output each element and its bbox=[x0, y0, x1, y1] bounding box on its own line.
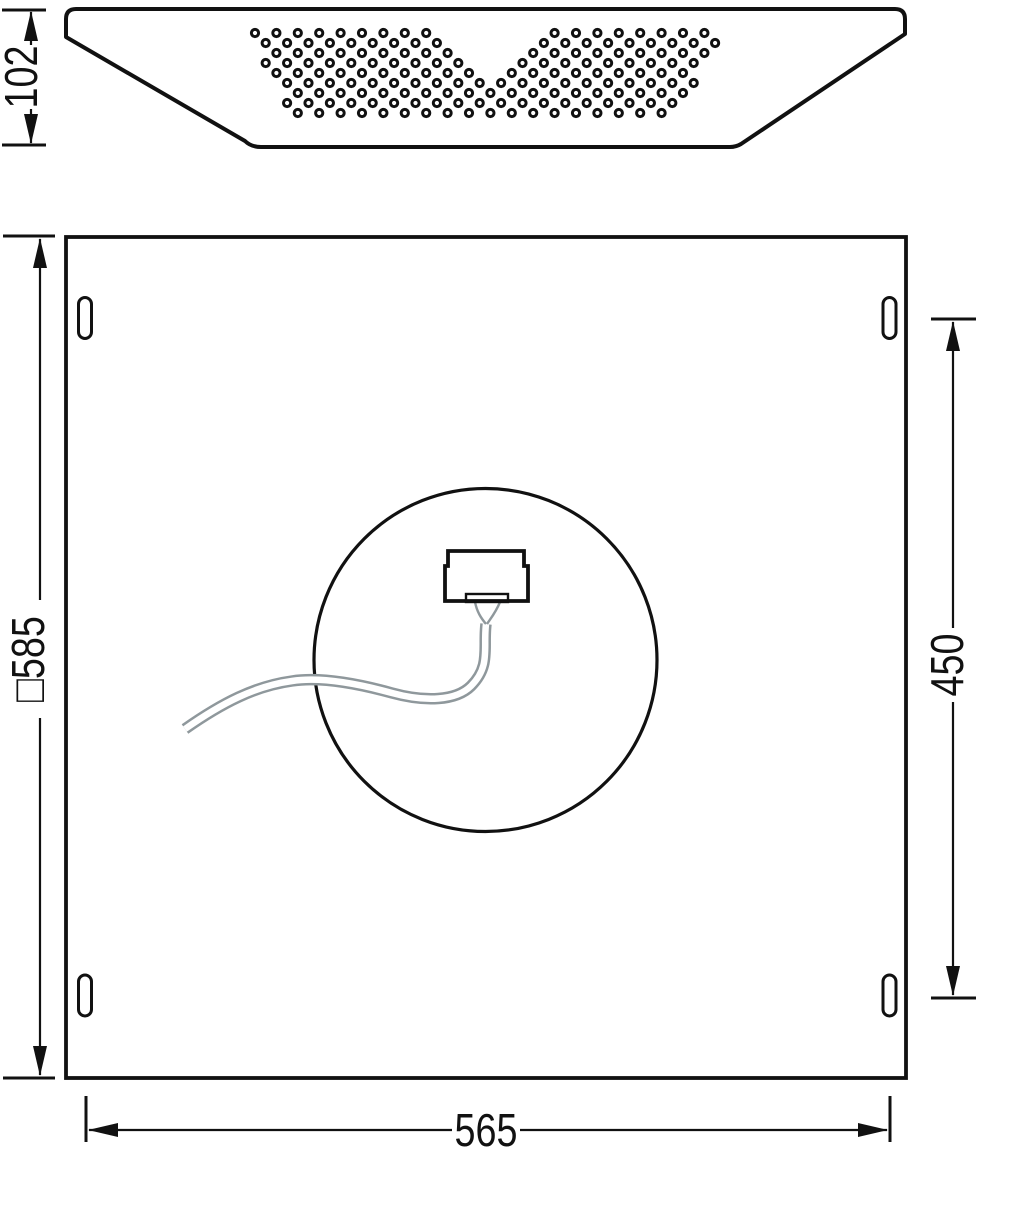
mounting-slot-top-right bbox=[883, 298, 896, 339]
perforation-hole bbox=[455, 79, 462, 86]
perforation-hole bbox=[615, 109, 622, 116]
perforation-hole bbox=[562, 39, 569, 46]
perforation-hole bbox=[669, 99, 676, 106]
dim-565-arrow-left bbox=[88, 1123, 118, 1137]
perforation-hole bbox=[626, 99, 633, 106]
perforation-pattern bbox=[251, 29, 718, 116]
perforation-hole bbox=[583, 99, 590, 106]
dim-565-arrow-right bbox=[858, 1123, 888, 1137]
perforation-hole bbox=[465, 109, 472, 116]
dimension-profile-height: 102 bbox=[0, 10, 47, 145]
perforation-hole bbox=[273, 49, 280, 56]
perforation-hole bbox=[615, 29, 622, 36]
perforation-hole bbox=[337, 29, 344, 36]
perforation-hole bbox=[540, 39, 547, 46]
perforation-hole bbox=[615, 89, 622, 96]
perforation-hole bbox=[305, 79, 312, 86]
perforation-hole bbox=[444, 109, 451, 116]
perforation-hole bbox=[412, 39, 419, 46]
perforation-hole bbox=[476, 79, 483, 86]
perforation-hole bbox=[305, 59, 312, 66]
perforation-hole bbox=[380, 49, 387, 56]
perforation-hole bbox=[391, 99, 398, 106]
perforation-hole bbox=[337, 49, 344, 56]
perforation-hole bbox=[380, 109, 387, 116]
perforation-hole bbox=[594, 69, 601, 76]
perforation-hole bbox=[669, 79, 676, 86]
perforation-hole bbox=[583, 59, 590, 66]
perforation-hole bbox=[401, 29, 408, 36]
perforation-hole bbox=[326, 59, 333, 66]
connector-wire-left bbox=[475, 602, 486, 624]
perforation-hole bbox=[637, 69, 644, 76]
perforation-hole bbox=[465, 89, 472, 96]
perforation-hole bbox=[294, 109, 301, 116]
dim-450-arrow-up bbox=[946, 321, 960, 351]
perforation-hole bbox=[679, 49, 686, 56]
perforation-hole bbox=[572, 69, 579, 76]
perforation-hole bbox=[316, 49, 323, 56]
perforation-hole bbox=[369, 39, 376, 46]
dim-585-arrow-up bbox=[33, 238, 47, 268]
perforation-hole bbox=[326, 79, 333, 86]
perforation-hole bbox=[498, 99, 505, 106]
dimension-panel-square: □585 bbox=[2, 236, 55, 1078]
perforation-hole bbox=[551, 49, 558, 56]
perforation-hole bbox=[423, 109, 430, 116]
perforation-hole bbox=[358, 49, 365, 56]
perforation-hole bbox=[391, 39, 398, 46]
perforation-hole bbox=[358, 89, 365, 96]
perforation-hole bbox=[487, 109, 494, 116]
rear-view-panel bbox=[66, 237, 906, 1078]
perforation-hole bbox=[433, 59, 440, 66]
perforation-hole bbox=[572, 89, 579, 96]
perforation-hole bbox=[701, 49, 708, 56]
perforation-hole bbox=[637, 89, 644, 96]
perforation-hole bbox=[551, 109, 558, 116]
perforation-hole bbox=[583, 79, 590, 86]
perforation-hole bbox=[562, 79, 569, 86]
perforation-hole bbox=[380, 89, 387, 96]
perforation-hole bbox=[294, 29, 301, 36]
perforation-hole bbox=[562, 99, 569, 106]
perforation-hole bbox=[401, 109, 408, 116]
profile-outline bbox=[66, 9, 905, 147]
perforation-hole bbox=[284, 79, 291, 86]
perforation-hole bbox=[412, 79, 419, 86]
dim-102-arrow-down bbox=[24, 114, 38, 144]
perforation-hole bbox=[348, 99, 355, 106]
drawing-canvas: 102 □585 450 bbox=[0, 0, 1027, 1200]
perforation-hole bbox=[487, 89, 494, 96]
perforation-hole bbox=[669, 59, 676, 66]
perforation-hole bbox=[626, 59, 633, 66]
perforation-hole bbox=[316, 109, 323, 116]
perforation-hole bbox=[658, 109, 665, 116]
perforation-hole bbox=[583, 39, 590, 46]
perforation-hole bbox=[519, 79, 526, 86]
perforation-hole bbox=[605, 39, 612, 46]
perforation-hole bbox=[358, 109, 365, 116]
perforation-hole bbox=[519, 59, 526, 66]
perforation-hole bbox=[594, 49, 601, 56]
perforation-hole bbox=[605, 99, 612, 106]
perforation-hole bbox=[690, 39, 697, 46]
perforation-hole bbox=[572, 29, 579, 36]
perforation-hole bbox=[690, 79, 697, 86]
perforation-hole bbox=[444, 49, 451, 56]
perforation-hole bbox=[637, 29, 644, 36]
perforation-hole bbox=[508, 109, 515, 116]
perforation-hole bbox=[391, 59, 398, 66]
perforation-hole bbox=[423, 69, 430, 76]
perforation-hole bbox=[615, 69, 622, 76]
perforation-hole bbox=[369, 59, 376, 66]
perforation-hole bbox=[712, 39, 719, 46]
perforation-hole bbox=[401, 49, 408, 56]
perforation-hole bbox=[669, 39, 676, 46]
dim-102-label: 102 bbox=[0, 46, 47, 109]
perforation-hole bbox=[433, 39, 440, 46]
dim-450-arrow-down bbox=[946, 966, 960, 996]
perforation-hole bbox=[433, 99, 440, 106]
perforation-hole bbox=[348, 39, 355, 46]
dim-585-arrow-down bbox=[33, 1046, 47, 1076]
perforation-hole bbox=[530, 49, 537, 56]
perforation-hole bbox=[423, 49, 430, 56]
perforation-hole bbox=[273, 69, 280, 76]
perforation-hole bbox=[348, 79, 355, 86]
perforation-hole bbox=[701, 29, 708, 36]
perforation-hole bbox=[572, 49, 579, 56]
perforation-hole bbox=[262, 59, 269, 66]
perforation-hole bbox=[679, 69, 686, 76]
perforation-hole bbox=[423, 29, 430, 36]
perforation-hole bbox=[594, 109, 601, 116]
perforation-hole bbox=[444, 89, 451, 96]
perforation-hole bbox=[605, 59, 612, 66]
top-view-profile bbox=[66, 9, 905, 147]
perforation-hole bbox=[562, 59, 569, 66]
perforation-hole bbox=[594, 89, 601, 96]
perforation-hole bbox=[401, 69, 408, 76]
dim-585-label: □585 bbox=[2, 616, 53, 702]
perforation-hole bbox=[294, 89, 301, 96]
perforation-hole bbox=[551, 29, 558, 36]
dim-450-label: 450 bbox=[921, 634, 972, 697]
perforation-hole bbox=[658, 29, 665, 36]
perforation-hole bbox=[412, 99, 419, 106]
perforation-hole bbox=[284, 99, 291, 106]
perforation-hole bbox=[572, 109, 579, 116]
perforation-hole bbox=[551, 89, 558, 96]
perforation-hole bbox=[316, 29, 323, 36]
perforation-hole bbox=[679, 89, 686, 96]
connector-wire-right bbox=[487, 602, 500, 624]
perforation-hole bbox=[626, 79, 633, 86]
perforation-hole bbox=[358, 29, 365, 36]
perforation-hole bbox=[337, 109, 344, 116]
perforation-hole bbox=[401, 89, 408, 96]
perforation-hole bbox=[647, 99, 654, 106]
perforation-hole bbox=[369, 99, 376, 106]
perforation-hole bbox=[540, 59, 547, 66]
perforation-hole bbox=[605, 79, 612, 86]
perforation-hole bbox=[337, 69, 344, 76]
mounting-slot-top-left bbox=[79, 298, 92, 339]
perforation-hole bbox=[637, 49, 644, 56]
drawing-page: 102 □585 450 bbox=[0, 0, 1027, 1200]
perforation-hole bbox=[294, 69, 301, 76]
perforation-hole bbox=[444, 69, 451, 76]
dim-565-label: 565 bbox=[455, 1104, 518, 1155]
perforation-hole bbox=[658, 49, 665, 56]
mounting-slot-bottom-left bbox=[79, 975, 92, 1016]
perforation-hole bbox=[284, 39, 291, 46]
supply-cable bbox=[185, 624, 486, 729]
perforation-hole bbox=[540, 99, 547, 106]
perforation-hole bbox=[380, 69, 387, 76]
perforation-hole bbox=[647, 39, 654, 46]
perforation-hole bbox=[530, 89, 537, 96]
perforation-hole bbox=[658, 89, 665, 96]
perforation-hole bbox=[369, 79, 376, 86]
perforation-hole bbox=[326, 39, 333, 46]
perforation-hole bbox=[519, 99, 526, 106]
perforation-hole bbox=[690, 59, 697, 66]
perforation-hole bbox=[679, 29, 686, 36]
perforation-hole bbox=[391, 79, 398, 86]
perforation-hole bbox=[508, 69, 515, 76]
perforation-hole bbox=[337, 89, 344, 96]
perforation-hole bbox=[348, 59, 355, 66]
perforation-hole bbox=[305, 39, 312, 46]
perforation-hole bbox=[358, 69, 365, 76]
dimension-mount-horizontal: 565 bbox=[86, 1096, 890, 1156]
perforation-hole bbox=[380, 29, 387, 36]
perforation-hole bbox=[530, 69, 537, 76]
dim-102-arrow-up bbox=[24, 11, 38, 41]
perforation-hole bbox=[637, 109, 644, 116]
perforation-hole bbox=[305, 99, 312, 106]
perforation-hole bbox=[433, 79, 440, 86]
perforation-hole bbox=[647, 79, 654, 86]
perforation-hole bbox=[594, 29, 601, 36]
perforation-hole bbox=[251, 29, 258, 36]
perforation-hole bbox=[423, 89, 430, 96]
perforation-hole bbox=[273, 29, 280, 36]
perforation-hole bbox=[647, 59, 654, 66]
perforation-hole bbox=[316, 69, 323, 76]
perforation-hole bbox=[465, 69, 472, 76]
perforation-hole bbox=[412, 59, 419, 66]
perforation-hole bbox=[626, 39, 633, 46]
perforation-hole bbox=[658, 69, 665, 76]
dimension-mount-vertical: 450 bbox=[921, 319, 976, 998]
perforation-hole bbox=[530, 109, 537, 116]
perforation-hole bbox=[316, 89, 323, 96]
perforation-hole bbox=[294, 49, 301, 56]
mounting-slot-bottom-right bbox=[883, 975, 896, 1016]
perforation-hole bbox=[326, 99, 333, 106]
perforation-hole bbox=[476, 99, 483, 106]
perforation-hole bbox=[455, 59, 462, 66]
perforation-hole bbox=[508, 89, 515, 96]
perforation-hole bbox=[551, 69, 558, 76]
perforation-hole bbox=[284, 59, 291, 66]
perforation-hole bbox=[498, 79, 505, 86]
perforation-hole bbox=[262, 39, 269, 46]
perforation-hole bbox=[540, 79, 547, 86]
perforation-hole bbox=[455, 99, 462, 106]
perforation-hole bbox=[615, 49, 622, 56]
